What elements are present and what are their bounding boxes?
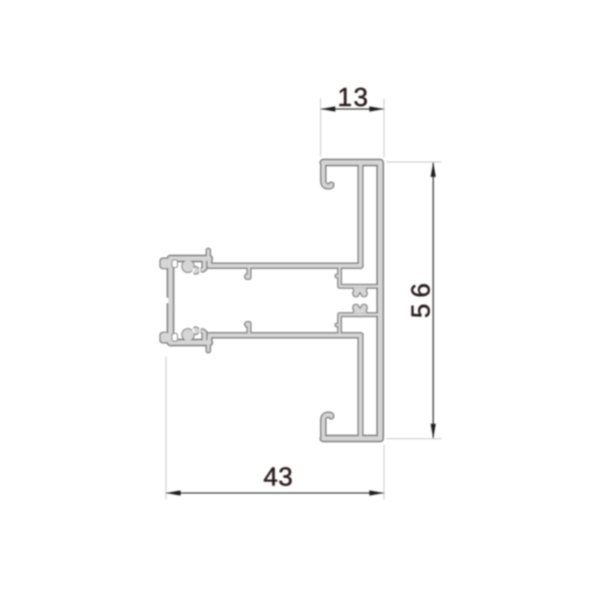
svg-text:43: 43 [263, 462, 293, 492]
svg-text:13: 13 [338, 82, 370, 112]
svg-text:56: 56 [405, 277, 435, 318]
